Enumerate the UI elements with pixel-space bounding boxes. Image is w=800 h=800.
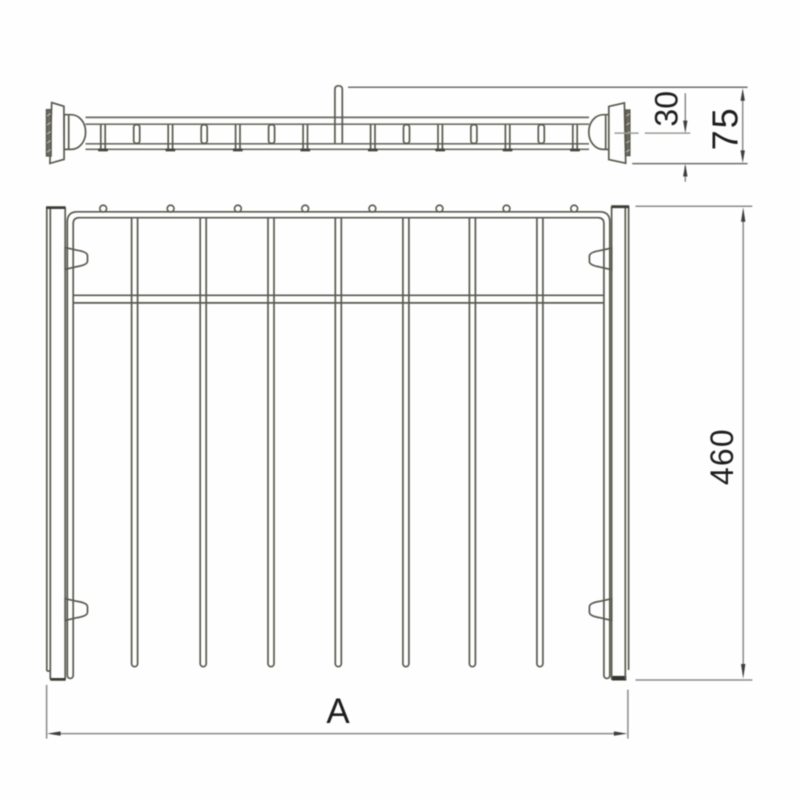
- svg-text:30: 30: [648, 91, 684, 127]
- svg-text:75: 75: [704, 106, 745, 150]
- svg-text:A: A: [326, 692, 350, 731]
- svg-text:460: 460: [704, 428, 740, 485]
